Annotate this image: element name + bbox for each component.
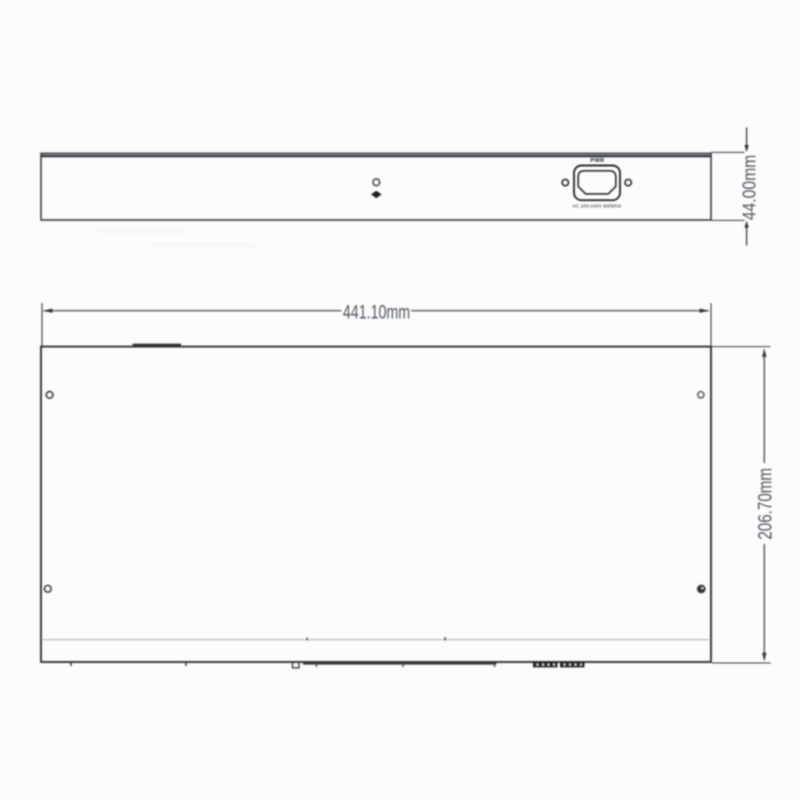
svg-text:AC 100-240V 50/60Hz: AC 100-240V 50/60Hz <box>573 203 623 209</box>
svg-text:44.00mm: 44.00mm <box>738 155 760 221</box>
svg-text:PWR: PWR <box>590 158 604 164</box>
svg-text:206.70mm: 206.70mm <box>754 468 776 540</box>
svg-text:441.10mm: 441.10mm <box>343 301 410 322</box>
